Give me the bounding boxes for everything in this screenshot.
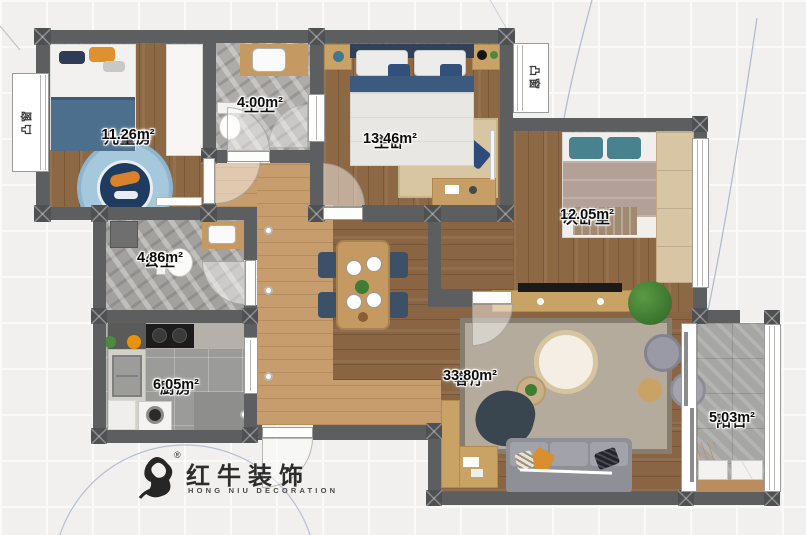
washing-machine (138, 401, 172, 431)
dining-chair (318, 292, 338, 318)
room-area: 4.00m² (237, 95, 283, 111)
second-wardrobe (656, 131, 694, 283)
wall-corner (242, 308, 258, 324)
brand-logo: ® 红牛装饰 HONG NIU DECORATION (138, 450, 398, 506)
dining-chair (388, 292, 408, 318)
kitchen-sink (112, 355, 142, 397)
wall-corner (497, 205, 514, 222)
sofa-baguette-pillow (520, 468, 612, 474)
window-glazing-line (702, 140, 703, 286)
sliding-panel (690, 408, 694, 482)
sliding-panel (250, 340, 251, 391)
kitchen-cabinet-white (108, 400, 136, 430)
window-glazing-line (40, 75, 41, 170)
desk-item (469, 186, 477, 194)
wall (428, 492, 780, 505)
window-glazing-line (316, 96, 317, 140)
sliding-panel (684, 332, 688, 406)
wall-corner (692, 116, 708, 132)
tv-console (492, 290, 644, 312)
wall-corner (764, 490, 780, 506)
centerpiece-plant (355, 280, 369, 294)
children-rug-badge (97, 160, 153, 207)
master-desk (432, 178, 496, 206)
kitchen-mat (194, 392, 244, 430)
pillow (607, 137, 641, 159)
room-area: 5.03m² (709, 410, 755, 426)
nightstand-left (324, 44, 352, 70)
floor-lamp (490, 130, 495, 180)
wall (93, 207, 106, 443)
sink-basin (208, 225, 236, 244)
registered-mark: ® (174, 450, 181, 460)
master-bedroom-door-leaf (323, 207, 363, 220)
wall-corner (34, 28, 51, 45)
room-area: 13.46m² (363, 131, 417, 147)
dining-chair (318, 252, 338, 278)
bowl (358, 312, 368, 322)
wall-corner (200, 205, 217, 222)
wall (513, 118, 695, 131)
pouf (638, 378, 662, 402)
cooking-pot (127, 335, 141, 349)
entry-floor (333, 380, 441, 425)
wall-corner (426, 490, 442, 506)
master-bath-vanity (240, 44, 308, 76)
wall-corner (308, 28, 325, 45)
public-bath-door-leaf (245, 260, 256, 306)
pillow (103, 61, 125, 72)
hallway-console (156, 197, 202, 206)
wall (93, 310, 257, 323)
plate (346, 294, 362, 310)
nightstand-right (472, 44, 500, 70)
wall (428, 290, 472, 307)
room-area: 6.05m² (153, 377, 199, 393)
bay-window-right-label: 凸窗 (527, 65, 543, 91)
public-bath-cabinet (110, 221, 138, 248)
bay-window-left-label: 凸窗 (18, 109, 34, 135)
armchair (644, 334, 682, 372)
wall-corner (692, 308, 708, 324)
dining-chair (388, 252, 408, 278)
wall (244, 323, 257, 337)
stove (146, 324, 194, 348)
sink-basin (252, 48, 286, 72)
balcony-wood-strip (697, 480, 766, 492)
wall (36, 30, 513, 43)
paper (445, 185, 459, 194)
plant-pot (333, 51, 344, 62)
children-wardrobe (166, 44, 203, 156)
balcony-window (764, 324, 781, 492)
bull-icon (138, 454, 180, 500)
wall (500, 30, 513, 222)
wall-corner (91, 428, 107, 444)
pillow (59, 51, 85, 64)
window-glazing-line (45, 75, 46, 170)
plate (346, 260, 362, 276)
room-area: 12.05m² (560, 207, 614, 223)
wall-corner (91, 205, 108, 222)
entry-shoe-cabinet (441, 400, 460, 488)
window-glazing-line (769, 326, 770, 490)
wall-corner (91, 308, 107, 324)
entrance-door-leaf (262, 427, 313, 438)
wall-corner (678, 490, 694, 506)
window-glazing-line (517, 45, 518, 111)
wall (93, 430, 257, 443)
room-area: 33.80m² (443, 368, 497, 384)
floor-plan-canvas: 凸窗 凸窗 儿童房 11.26m² 主卫 4.00m² 主卧 13.46m² 次… (0, 0, 806, 535)
ceiling-light (264, 226, 273, 235)
wall (313, 425, 441, 440)
room-area: 11.26m² (101, 127, 154, 143)
dining-table (336, 240, 390, 330)
pillow (569, 137, 603, 159)
window-glazing-line (697, 140, 698, 286)
master-bed (350, 44, 474, 166)
speaker (477, 50, 487, 60)
wall (216, 150, 227, 163)
window-glazing-line (774, 326, 775, 490)
balcony-slab (698, 460, 728, 480)
brand-name-en: HONG NIU DECORATION (188, 486, 338, 495)
wall (203, 43, 216, 158)
ceiling-light (264, 286, 273, 295)
tv-screen (518, 283, 622, 292)
second-bedroom-window (692, 138, 709, 288)
master-bath-door-leaf (227, 151, 270, 162)
public-bath-vanity (202, 221, 244, 249)
second-bedroom-door-leaf (472, 291, 512, 304)
pillow (89, 47, 115, 62)
children-door-leaf (203, 158, 215, 204)
window-glazing-line (522, 45, 523, 111)
wall-corner (242, 427, 258, 443)
plant-pot (490, 51, 498, 59)
wall-corner (34, 205, 51, 222)
plate (366, 292, 382, 308)
wall (36, 207, 257, 220)
room-area: 4.86m² (137, 250, 183, 266)
balcony-slab (731, 460, 763, 480)
wall-corner (426, 423, 442, 439)
ceiling-light (264, 372, 273, 381)
duvet (350, 92, 474, 166)
sofa (506, 438, 632, 494)
wall-corner (424, 205, 441, 222)
kitchen-sliding-door (244, 337, 258, 394)
wall (244, 207, 257, 260)
living-plant (628, 281, 672, 325)
plate (366, 256, 382, 272)
